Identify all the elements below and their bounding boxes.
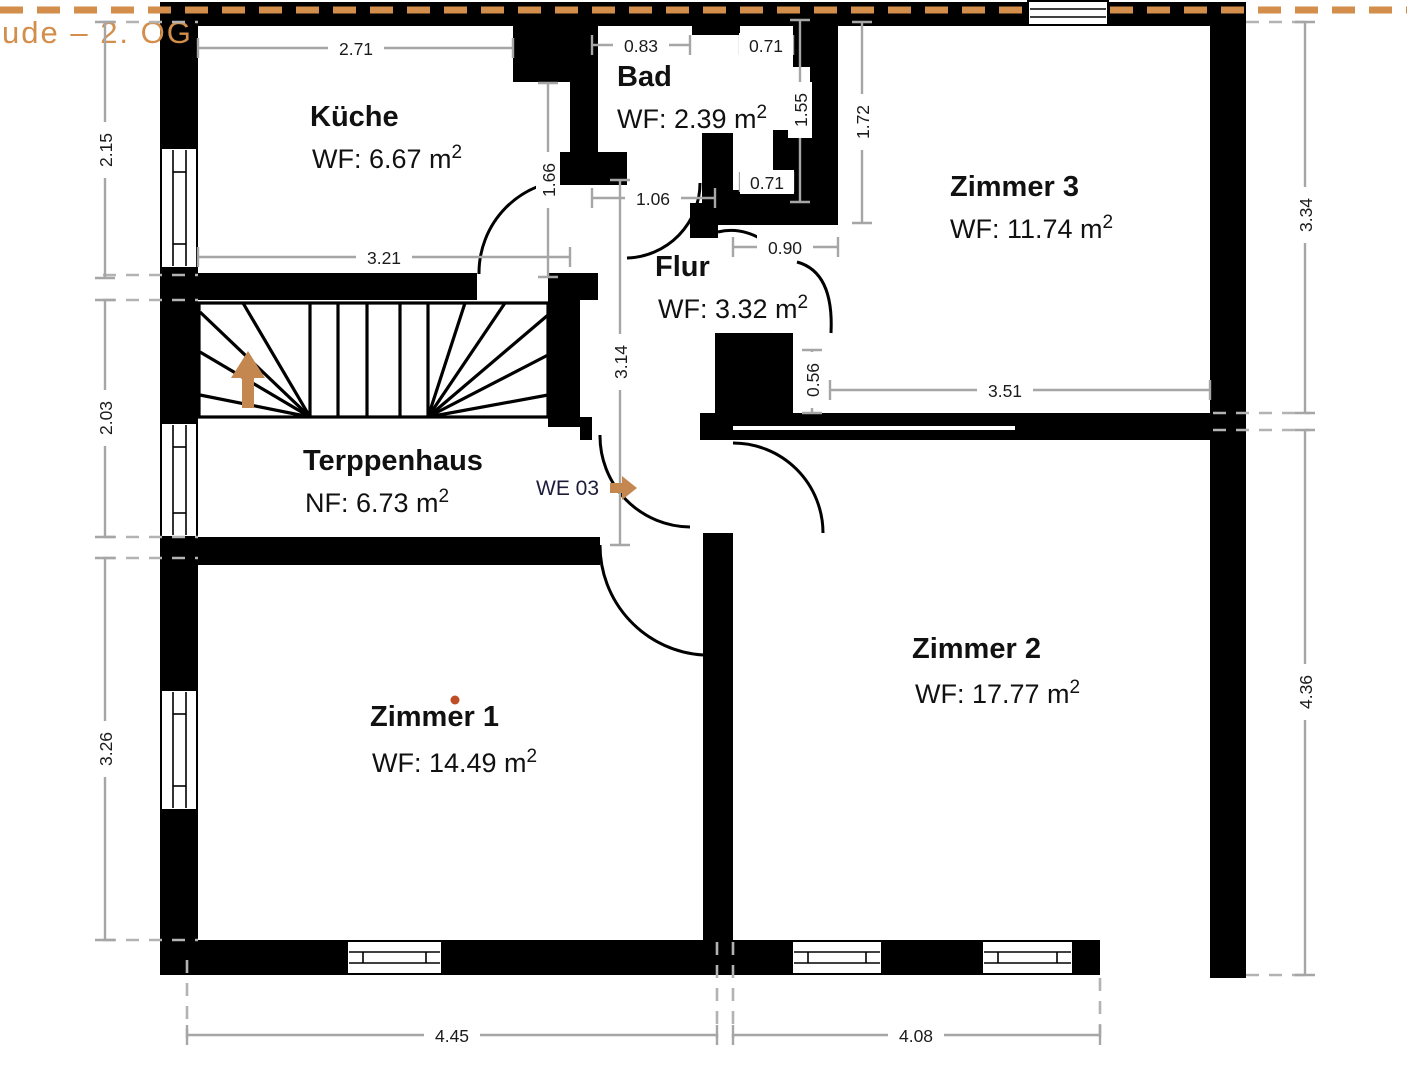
dimension-left-mid: 2.03 [93, 300, 117, 537]
svg-text:WE 03: WE 03 [536, 477, 599, 500]
svg-text:Küche: Küche [310, 101, 399, 133]
room-label-flur: Flur WF: 3.32 m2 [655, 251, 808, 324]
window-treppenhaus-left [161, 423, 197, 537]
dimension-zimmer3-bottom: 3.51 [830, 378, 1210, 402]
svg-text:WF: 6.67 m2: WF: 6.67 m2 [312, 142, 462, 174]
stairs [199, 303, 548, 417]
dimension-bad-top: 0.83 [592, 33, 690, 57]
stairs-direction-arrow [231, 351, 265, 408]
dimension-kueche-right: 1.66 [536, 83, 560, 277]
svg-text:1.55: 1.55 [791, 93, 811, 127]
dimension-zimmer3-notch: 0.56 [800, 350, 824, 413]
svg-text:4.36: 4.36 [1296, 675, 1316, 709]
svg-text:3.21: 3.21 [367, 248, 401, 268]
dimension-kueche-top: 2.71 [198, 36, 513, 60]
window-zimmer2-bottom-right [982, 941, 1073, 974]
svg-text:WF: 14.49 m2: WF: 14.49 m2 [372, 746, 537, 778]
dimension-shaft-bottom: 0.71 [740, 170, 794, 194]
svg-text:3.51: 3.51 [988, 381, 1022, 401]
svg-text:Zimmer 3: Zimmer 3 [950, 171, 1079, 203]
floorplan-canvas: ude – 2. OG [0, 0, 1407, 1080]
svg-text:0.56: 0.56 [803, 363, 823, 397]
svg-text:2.71: 2.71 [339, 39, 373, 59]
dimension-kueche-bottom: 3.21 [198, 245, 570, 269]
svg-text:WF: 3.32 m2: WF: 3.32 m2 [658, 292, 808, 324]
svg-text:0.71: 0.71 [750, 173, 784, 193]
dimension-shaft-top: 0.71 [739, 33, 793, 57]
svg-text:1.06: 1.06 [636, 189, 670, 209]
room-label-zimmer1: Zimmer 1 WF: 14.49 m2 [370, 696, 537, 779]
window-kueche-left [161, 148, 197, 268]
unit-entrance-arrow [610, 476, 637, 500]
dimension-bottom-right: 4.08 [733, 1023, 1100, 1047]
svg-text:0.71: 0.71 [749, 36, 783, 56]
floor-title: ude – 2. OG [2, 15, 193, 50]
svg-text:1.66: 1.66 [539, 163, 559, 197]
svg-text:Zimmer 2: Zimmer 2 [912, 633, 1041, 665]
room-label-kueche: Küche WF: 6.67 m2 [310, 101, 462, 174]
svg-text:4.45: 4.45 [435, 1026, 469, 1046]
dimension-zimmer3-west: 1.72 [850, 22, 874, 223]
dimension-left-top: 2.15 [93, 22, 117, 278]
dimension-zimmer3-door: 0.90 [733, 235, 838, 259]
svg-text:4.08: 4.08 [899, 1026, 933, 1046]
door-arc-we03 [600, 435, 690, 527]
svg-text:Zimmer 1: Zimmer 1 [370, 701, 499, 733]
svg-text:0.83: 0.83 [624, 36, 658, 56]
window-zimmer1-left [161, 690, 197, 810]
svg-text:Terppenhaus: Terppenhaus [303, 445, 483, 477]
svg-text:1.72: 1.72 [853, 105, 873, 139]
room-label-bad: Bad WF: 2.39 m2 [617, 61, 767, 134]
dimension-right-top: 3.34 [1293, 22, 1317, 413]
svg-text:Flur: Flur [655, 251, 710, 283]
dimension-bottom-left: 4.45 [187, 1023, 717, 1047]
door-arc-zimmer2 [733, 443, 823, 533]
svg-text:3.26: 3.26 [96, 732, 116, 766]
svg-text:3.14: 3.14 [611, 345, 631, 379]
svg-text:Bad: Bad [617, 61, 672, 93]
svg-text:2.03: 2.03 [96, 401, 116, 435]
window-zimmer1-bottom [347, 941, 442, 974]
svg-text:NF: 6.73 m2: NF: 6.73 m2 [305, 486, 449, 518]
svg-text:2.15: 2.15 [96, 133, 116, 167]
door-arc-zimmer1 [600, 545, 703, 655]
dimension-left-bottom: 3.26 [93, 558, 117, 940]
window-zimmer3-top [1028, 1, 1108, 25]
svg-text:WF: 2.39 m2: WF: 2.39 m2 [617, 102, 767, 134]
room-label-treppenhaus: Terppenhaus NF: 6.73 m2 [303, 445, 483, 518]
svg-text:3.34: 3.34 [1296, 198, 1316, 232]
room-label-zimmer3: Zimmer 3 WF: 11.74 m2 [950, 171, 1113, 244]
zimmer1-marker-dot [451, 696, 460, 705]
svg-text:WF: 11.74 m2: WF: 11.74 m2 [950, 212, 1113, 244]
room-label-zimmer2: Zimmer 2 WF: 17.77 m2 [912, 633, 1080, 709]
window-zimmer2-bottom-left [792, 941, 882, 974]
svg-text:WF: 17.77 m2: WF: 17.77 m2 [915, 677, 1080, 709]
svg-text:0.90: 0.90 [768, 238, 802, 258]
dimension-right-bottom: 4.36 [1293, 430, 1317, 975]
floorplan-page: ude – 2. OG [0, 0, 1407, 1080]
